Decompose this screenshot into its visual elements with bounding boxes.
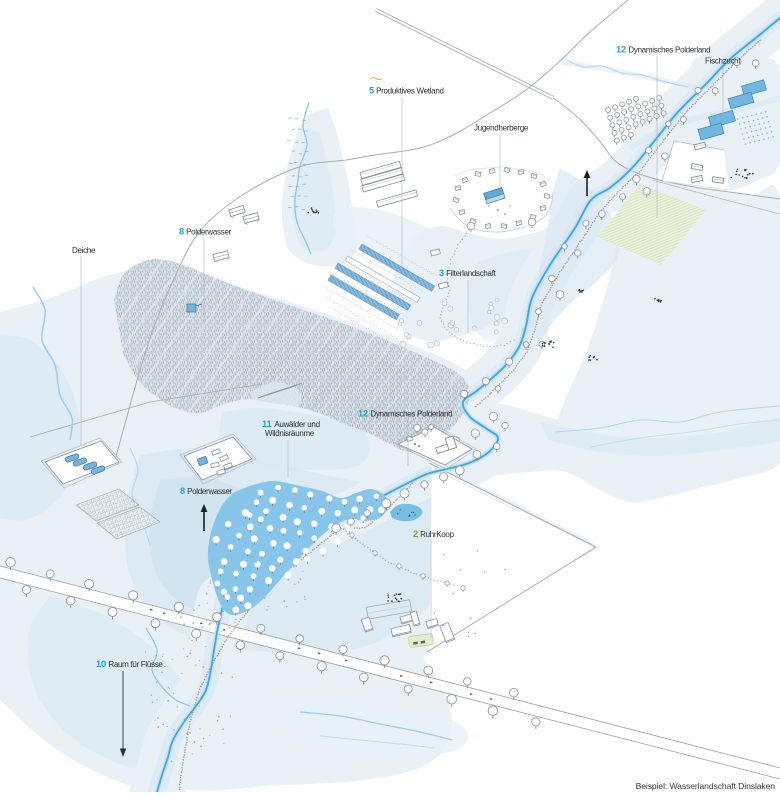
svg-text:2: 2 (413, 529, 418, 539)
svg-text:8: 8 (180, 486, 185, 496)
svg-text:Deiche: Deiche (72, 246, 96, 255)
svg-text:Wildnisräunme: Wildnisräunme (265, 429, 315, 438)
svg-text:12: 12 (616, 45, 626, 55)
svg-text:Fischzucht: Fischzucht (705, 57, 741, 66)
svg-text:Dynamisches Polderland: Dynamisches Polderland (628, 46, 710, 55)
svg-text:Polderwasser: Polderwasser (187, 487, 233, 496)
svg-text:Dynamisches Polderland: Dynamisches Polderland (370, 410, 452, 419)
svg-text:Raum für Flüsse: Raum für Flüsse (108, 660, 163, 669)
svg-text:10: 10 (96, 659, 106, 669)
svg-text:5: 5 (369, 86, 374, 96)
svg-text:RuhrKoop: RuhrKoop (420, 530, 454, 539)
svg-text:3: 3 (439, 268, 444, 278)
svg-text:Beispiel: Wasserlandschaft Din: Beispiel: Wasserlandschaft Dinslaken (636, 781, 776, 791)
svg-text:8: 8 (179, 227, 184, 237)
svg-text:Auwälder und: Auwälder und (274, 420, 319, 429)
svg-text:Polderwasser: Polderwasser (186, 228, 232, 237)
svg-text:11: 11 (262, 419, 271, 429)
svg-text:Jugendherberge: Jugendherberge (474, 124, 529, 133)
svg-text:12: 12 (358, 409, 368, 419)
svg-text:Produktives Wetland: Produktives Wetland (376, 87, 444, 96)
svg-text:Filterlandschaft: Filterlandschaft (446, 269, 497, 278)
